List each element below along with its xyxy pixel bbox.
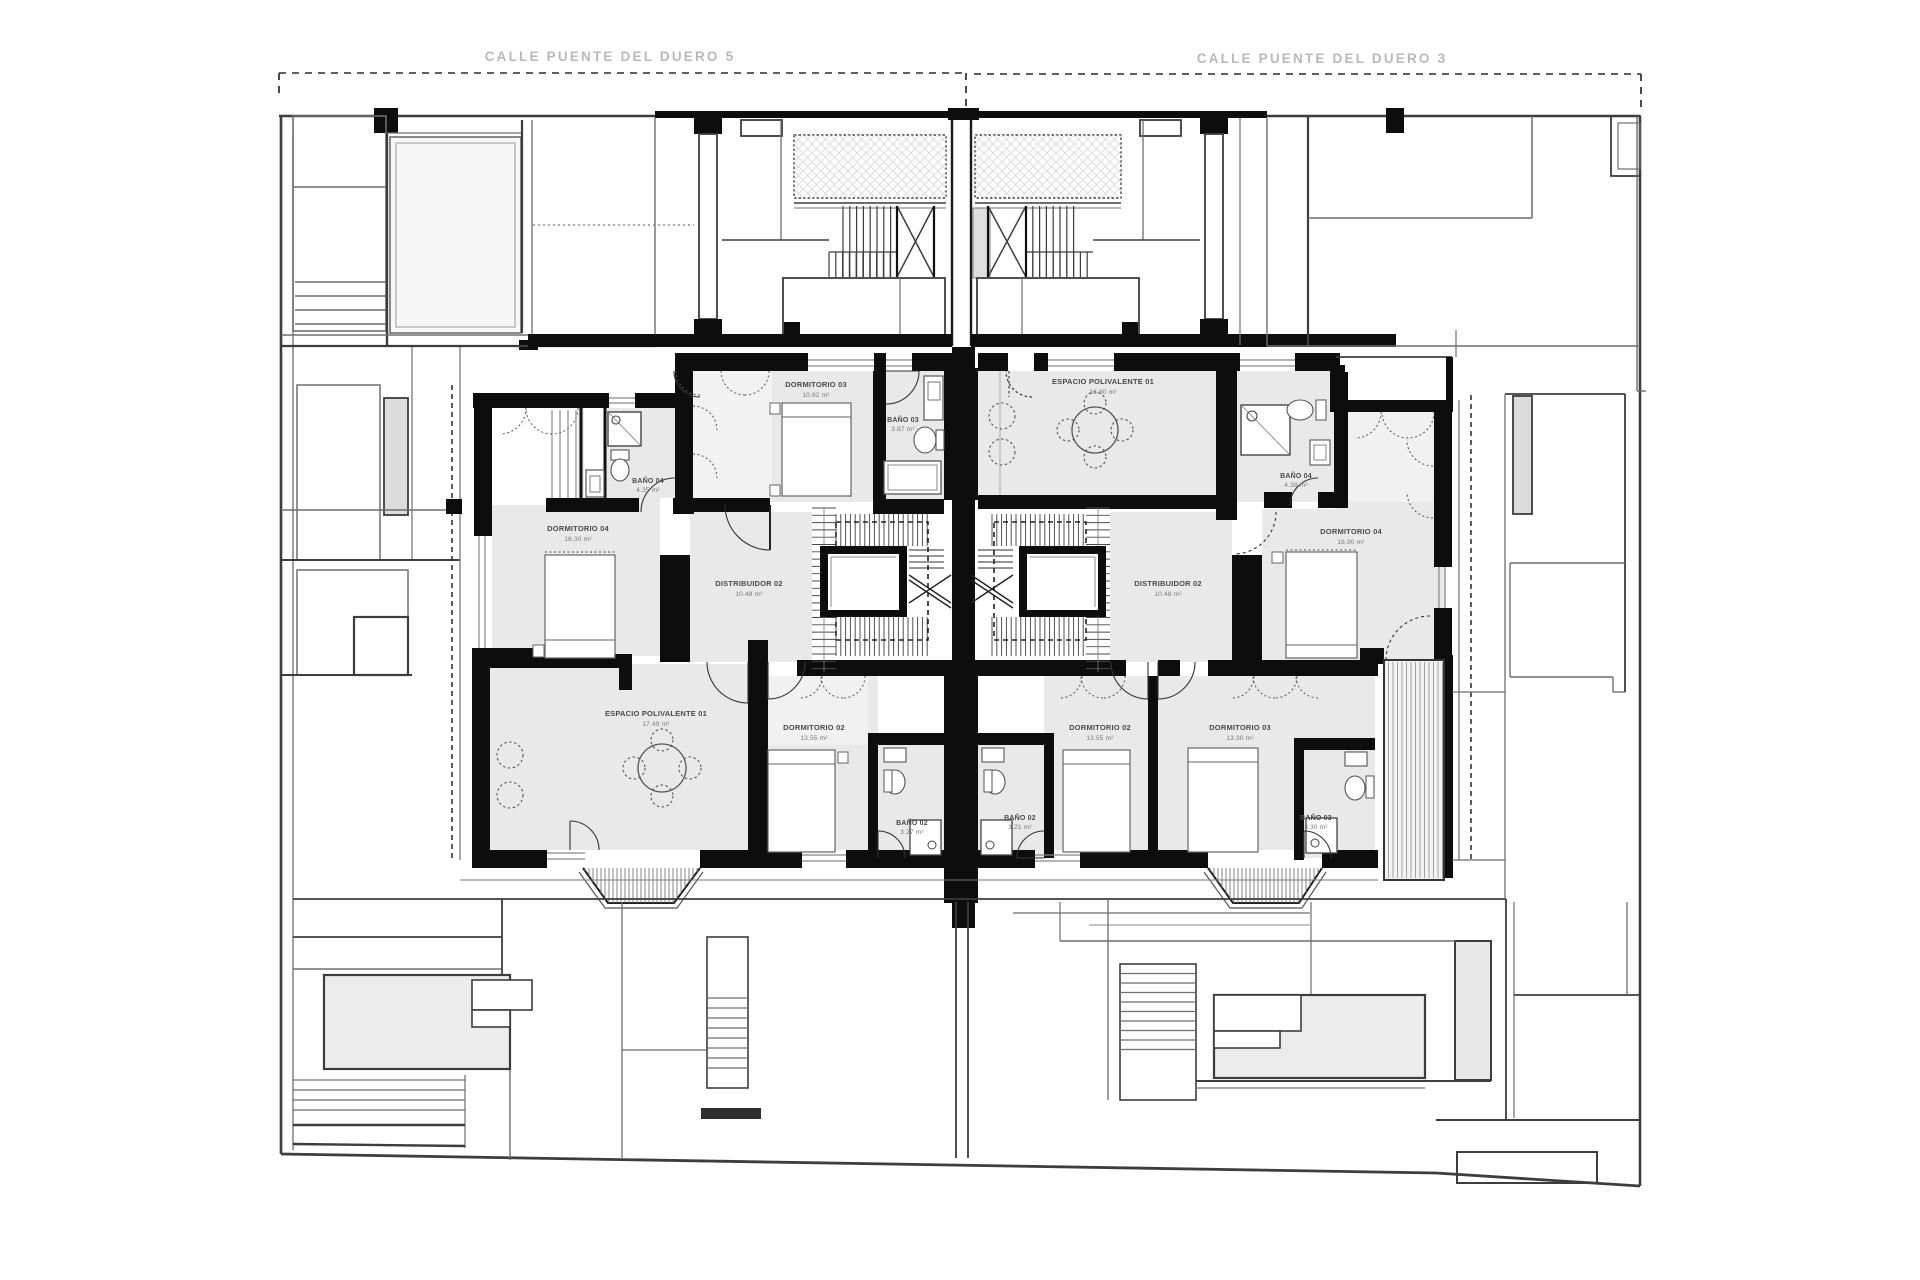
svg-text:3.87 m²: 3.87 m²: [891, 426, 915, 433]
svg-text:CALLE PUENTE DEL DUERO 5: CALLE PUENTE DEL DUERO 5: [485, 49, 736, 64]
svg-text:BAÑO 03: BAÑO 03: [887, 415, 919, 424]
svg-text:3.21 m²: 3.21 m²: [1008, 824, 1032, 831]
svg-text:4.35 m²: 4.35 m²: [636, 487, 660, 494]
svg-text:3.30 m²: 3.30 m²: [1304, 824, 1328, 831]
svg-text:BAÑO 03: BAÑO 03: [1300, 813, 1332, 822]
svg-text:DORMITORIO 02: DORMITORIO 02: [1069, 723, 1131, 732]
svg-text:DORMITORIO 04: DORMITORIO 04: [1320, 527, 1382, 536]
svg-text:DISTRIBUIDOR 02: DISTRIBUIDOR 02: [715, 579, 783, 588]
svg-text:16.90 m²: 16.90 m²: [1337, 539, 1365, 546]
svg-text:13.30 m²: 13.30 m²: [1226, 735, 1254, 742]
svg-text:BAÑO 02: BAÑO 02: [896, 818, 928, 827]
svg-text:BAÑO 02: BAÑO 02: [1004, 813, 1036, 822]
svg-text:13.55 m²: 13.55 m²: [800, 735, 828, 742]
svg-text:10.92 m²: 10.92 m²: [802, 392, 830, 399]
svg-text:10.48 m²: 10.48 m²: [735, 591, 763, 598]
svg-text:16.30 m²: 16.30 m²: [564, 536, 592, 543]
svg-text:17.49 m²: 17.49 m²: [642, 721, 670, 728]
svg-text:16.80 m²: 16.80 m²: [1089, 389, 1117, 396]
svg-text:CALLE PUENTE DEL DUERO 3: CALLE PUENTE DEL DUERO 3: [1197, 51, 1448, 66]
svg-text:DORMITORIO 02: DORMITORIO 02: [783, 723, 845, 732]
svg-text:13.55 m²: 13.55 m²: [1086, 735, 1114, 742]
svg-text:3.27 m²: 3.27 m²: [900, 829, 924, 836]
svg-text:DORMITORIO 03: DORMITORIO 03: [1209, 723, 1271, 732]
svg-text:ESPACIO POLIVALENTE 01: ESPACIO POLIVALENTE 01: [605, 709, 707, 718]
svg-text:4.38 m²: 4.38 m²: [1284, 482, 1308, 489]
svg-text:DORMITORIO 03: DORMITORIO 03: [785, 380, 847, 389]
svg-text:BAÑO 04: BAÑO 04: [632, 476, 664, 485]
svg-text:DORMITORIO 04: DORMITORIO 04: [547, 524, 609, 533]
svg-text:DISTRIBUIDOR 02: DISTRIBUIDOR 02: [1134, 579, 1202, 588]
svg-text:BAÑO 04: BAÑO 04: [1280, 471, 1312, 480]
svg-text:ESPACIO POLIVALENTE 01: ESPACIO POLIVALENTE 01: [1052, 377, 1154, 386]
svg-text:10.48 m²: 10.48 m²: [1154, 591, 1182, 598]
